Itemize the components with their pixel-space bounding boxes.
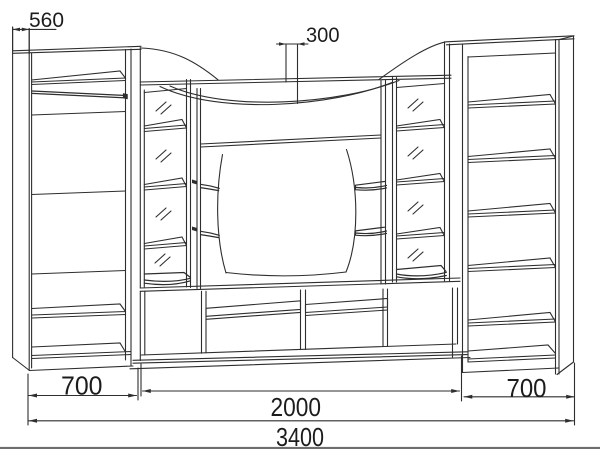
svg-text:3400: 3400 <box>276 422 324 450</box>
svg-text:700: 700 <box>61 371 103 401</box>
svg-text:300: 300 <box>306 24 340 47</box>
svg-text:560: 560 <box>29 9 64 32</box>
svg-text:2000: 2000 <box>271 392 322 422</box>
svg-text:700: 700 <box>507 373 547 403</box>
